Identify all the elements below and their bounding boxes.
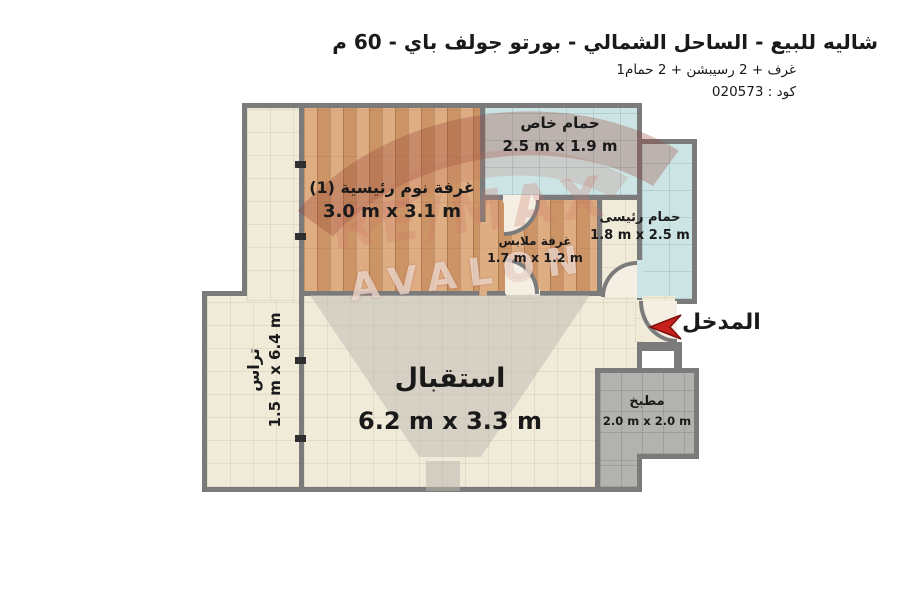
bath-master-name: حمام رئيسى — [560, 210, 720, 226]
reception-label: استقبال 6.2 m x 3.3 m — [310, 362, 590, 436]
wall-entrance-to-kitchen — [674, 342, 682, 373]
bedroom-label: غرفة نوم رئيسية (1) 3.0 m x 3.1 m — [302, 178, 482, 224]
kitchen-dims: 2.0 m x 2.0 m — [595, 414, 699, 428]
opening-kitchen — [600, 453, 637, 461]
bedroom-name: غرفة نوم رئيسية (1) — [302, 178, 482, 198]
floorplan-page: شاليه للبيع - الساحل الشمالي - بورتو جول… — [0, 0, 900, 600]
terrace-door-tick-1 — [295, 161, 306, 168]
doorway-bath-master — [636, 260, 643, 298]
kitchen-name: مطبخ — [595, 394, 699, 410]
bath-private-dims: 2.5 m x 1.9 m — [482, 137, 638, 156]
listing-code: كود : 020573 — [712, 84, 796, 100]
dressing-name: غرفة ملابس — [470, 234, 600, 249]
terrace-door-tick-2 — [295, 233, 306, 240]
bath-private-name: حمام خاص — [482, 114, 638, 133]
reception-dims: 6.2 m x 3.3 m — [310, 406, 590, 436]
dressing-label: غرفة ملابس 1.7 m x 1.2 m — [470, 234, 600, 266]
entrance-label: المدخل — [682, 310, 761, 335]
listing-rooms-summary: 1غرف + 2 رسيبشن + 2 حمام — [616, 62, 796, 78]
bath-private-label: حمام خاص 2.5 m x 1.9 m — [482, 114, 638, 156]
terrace-label: تراس 1.5 m x 6.4 m — [244, 270, 300, 470]
reception-name: استقبال — [310, 362, 590, 396]
entrance-arrow-icon — [648, 314, 682, 340]
terrace-dims: 1.5 m x 6.4 m — [266, 270, 285, 470]
dressing-dims: 1.7 m x 1.2 m — [470, 250, 600, 266]
bedroom-dims: 3.0 m x 3.1 m — [302, 201, 482, 224]
kitchen-label: مطبخ 2.0 m x 2.0 m — [595, 394, 699, 429]
terrace-name: تراس — [244, 270, 264, 470]
listing-title: شاليه للبيع - الساحل الشمالي - بورتو جول… — [332, 30, 878, 54]
